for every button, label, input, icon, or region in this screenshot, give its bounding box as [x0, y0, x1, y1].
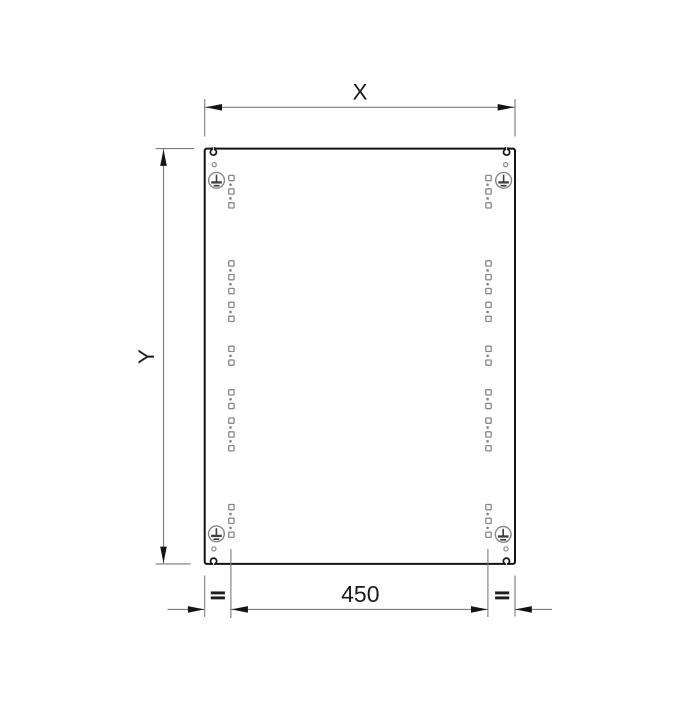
svg-text:X: X: [352, 79, 367, 104]
svg-text:Y: Y: [134, 349, 159, 364]
svg-text:450: 450: [341, 581, 379, 607]
